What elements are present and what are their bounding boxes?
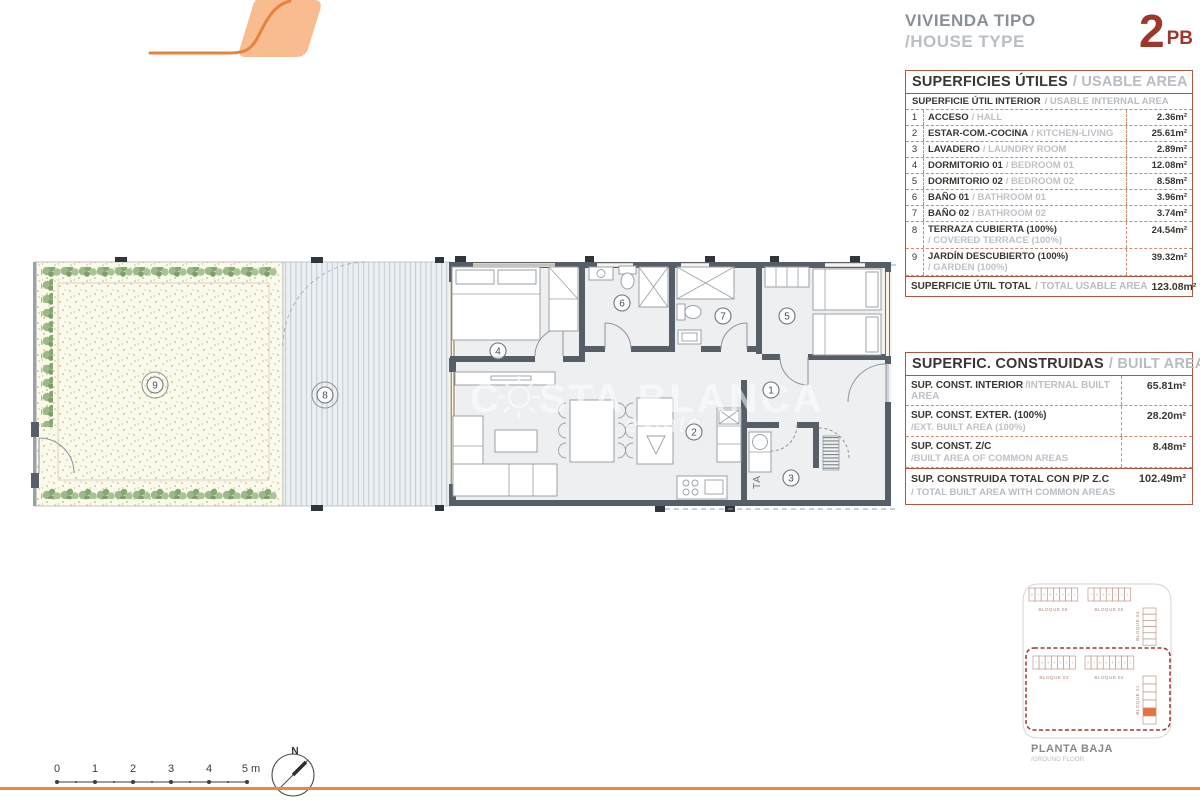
room-label-2: 2 (686, 424, 702, 440)
terrace-area (283, 262, 450, 506)
svg-text:1: 1 (768, 385, 774, 396)
bloque-04-label: BLOQUE 04 (1135, 611, 1141, 640)
toilet-bath2 (685, 306, 701, 319)
svg-text:2: 2 (130, 763, 136, 775)
plan-sheet: VIVIENDA TIPO /HOUSE TYPE 2 PB SUPERFICI… (0, 0, 1200, 800)
bloque-02-label: BLOQUE 02 (1094, 675, 1123, 681)
usable-table-subheader: SUPERFICIE ÚTIL INTERIOR / USABLE INTERN… (906, 94, 1192, 110)
scale-bar: 0 1 2 3 4 5 m N (40, 742, 330, 800)
floor-plan: TA C STA BLANCA estate 9 8 4 6 (25, 250, 900, 518)
site-caption-en: /GROUND FLOOR (1031, 756, 1085, 763)
compass-needle (293, 762, 306, 775)
table-row: 6BAÑO 01/ BATHROOM 013.96m² (906, 190, 1192, 206)
bloque-02: 87654321 (1085, 656, 1134, 669)
house-type-badge: 2 PB (1139, 10, 1193, 52)
hedge-bottom (41, 487, 277, 499)
bloque-06: 87654321 (1029, 588, 1078, 601)
site-caption-es: PLANTA BAJA (1031, 743, 1113, 755)
north-label: N (291, 746, 298, 757)
stove (677, 476, 727, 499)
usable-total-row: SUPERFICIE ÚTIL TOTAL / TOTAL USABLE ARE… (906, 276, 1192, 296)
bloque-05: 7654321 (1088, 588, 1131, 601)
type-code: PB (1167, 28, 1193, 50)
bloque-05-label: BLOQUE 05 (1094, 607, 1123, 613)
room-label-4: 4 (490, 343, 506, 359)
header-titles: VIVIENDA TIPO /HOUSE TYPE (905, 10, 1036, 52)
header: VIVIENDA TIPO /HOUSE TYPE 2 PB (905, 10, 1193, 52)
table-row: 1ACCESO/ HALL2.36m² (906, 110, 1192, 126)
table-row: 9JARDÍN DESCUBIERTO (100%)/ GARDEN (100%… (906, 249, 1192, 276)
title-es: VIVIENDA TIPO (905, 10, 1036, 31)
table-row: SUP. CONST. INTERIOR/INTERNAL BUILT AREA… (906, 376, 1192, 406)
usable-title-es: SUPERFICIES ÚTILES (912, 74, 1068, 90)
room-label-7: 7 (715, 308, 731, 324)
sink-bath2 (678, 330, 701, 344)
svg-text:9: 9 (152, 380, 158, 391)
svg-text:7: 7 (720, 311, 726, 322)
table-row: SUP. CONST. Z/C/BUILT AREA OF COMMON ARE… (906, 437, 1192, 468)
watermark-part1: C (470, 377, 502, 421)
svg-text:0: 0 (54, 763, 60, 775)
svg-text:4: 4 (206, 763, 212, 775)
svg-text:1: 1 (92, 763, 98, 775)
bloque-06-label: BLOQUE 06 (1038, 607, 1067, 613)
hedge-top (41, 267, 277, 279)
brand-logo (60, 0, 340, 62)
svg-text:3: 3 (168, 763, 174, 775)
table-row: 8TERRAZA CUBIERTA (100%)/ COVERED TERRAC… (906, 222, 1192, 249)
room-label-3: 3 (783, 470, 799, 486)
room-label-6: 6 (614, 295, 630, 311)
accent-rule (0, 787, 1200, 790)
svg-text:4: 4 (495, 346, 501, 357)
table-row: 5DORMITORIO 02/ BEDROOM 028.58m² (906, 174, 1192, 190)
svg-text:3: 3 (788, 473, 794, 484)
table-row: 3LAVADERO/ LAUNDRY ROOM2.89m² (906, 142, 1192, 158)
built-total-row: SUP. CONSTRUIDA TOTAL CON P/P Z.C/ TOTAL… (906, 468, 1192, 504)
sink-bath1 (589, 267, 613, 280)
table-row: SUP. CONST. EXTER. (100%)/EXT. BUILT ARE… (906, 406, 1192, 437)
hedge-left (41, 267, 53, 427)
scale-ruler: 0 1 2 3 4 5 m (54, 763, 260, 784)
logo-shape (239, 0, 321, 57)
built-area-table: SUPERFIC. CONSTRUIDAS / BUILT AREA SUP. … (905, 352, 1193, 505)
room-label-5: 5 (779, 308, 795, 324)
usable-title-en: / USABLE AREA (1073, 74, 1188, 90)
bloque-01 (1143, 676, 1156, 724)
built-table-header: SUPERFIC. CONSTRUIDAS / BUILT AREA (906, 353, 1192, 376)
svg-text:5 m: 5 m (242, 763, 260, 775)
bloque-03-label: BLOQUE 03 (1039, 675, 1068, 681)
svg-text:5: 5 (784, 311, 790, 322)
title-en: /HOUSE TYPE (905, 31, 1036, 52)
svg-text:6: 6 (619, 298, 625, 309)
bloque-01-label: BLOQUE 01 (1135, 685, 1141, 714)
bloque-04 (1143, 608, 1156, 645)
svg-text:8: 8 (322, 390, 328, 401)
coffee-table (495, 430, 537, 452)
type-number: 2 (1139, 10, 1165, 52)
table-row: 7BAÑO 02/ BATHROOM 023.74m² (906, 206, 1192, 222)
laundry-ta-label: TA (752, 475, 763, 489)
table-row: 4DORMITORIO 01/ BEDROOM 0112.08m² (906, 158, 1192, 174)
site-plan: 87654321 BLOQUE 06 7654321 BLOQUE 05 BLO… (1005, 580, 1195, 768)
bloque-03: 7654321 (1033, 656, 1076, 669)
room-label-1: 1 (763, 382, 779, 398)
table-row: 2ESTAR-COM.-COCINA/ KITCHEN-LIVING25.61m… (906, 126, 1192, 142)
svg-text:2: 2 (691, 427, 697, 438)
service-hatch (823, 436, 839, 470)
usable-area-table: SUPERFICIES ÚTILES / USABLE AREA SUPERFI… (905, 70, 1193, 297)
usable-table-header: SUPERFICIES ÚTILES / USABLE AREA (906, 71, 1192, 94)
toilet-bath1 (621, 273, 634, 289)
